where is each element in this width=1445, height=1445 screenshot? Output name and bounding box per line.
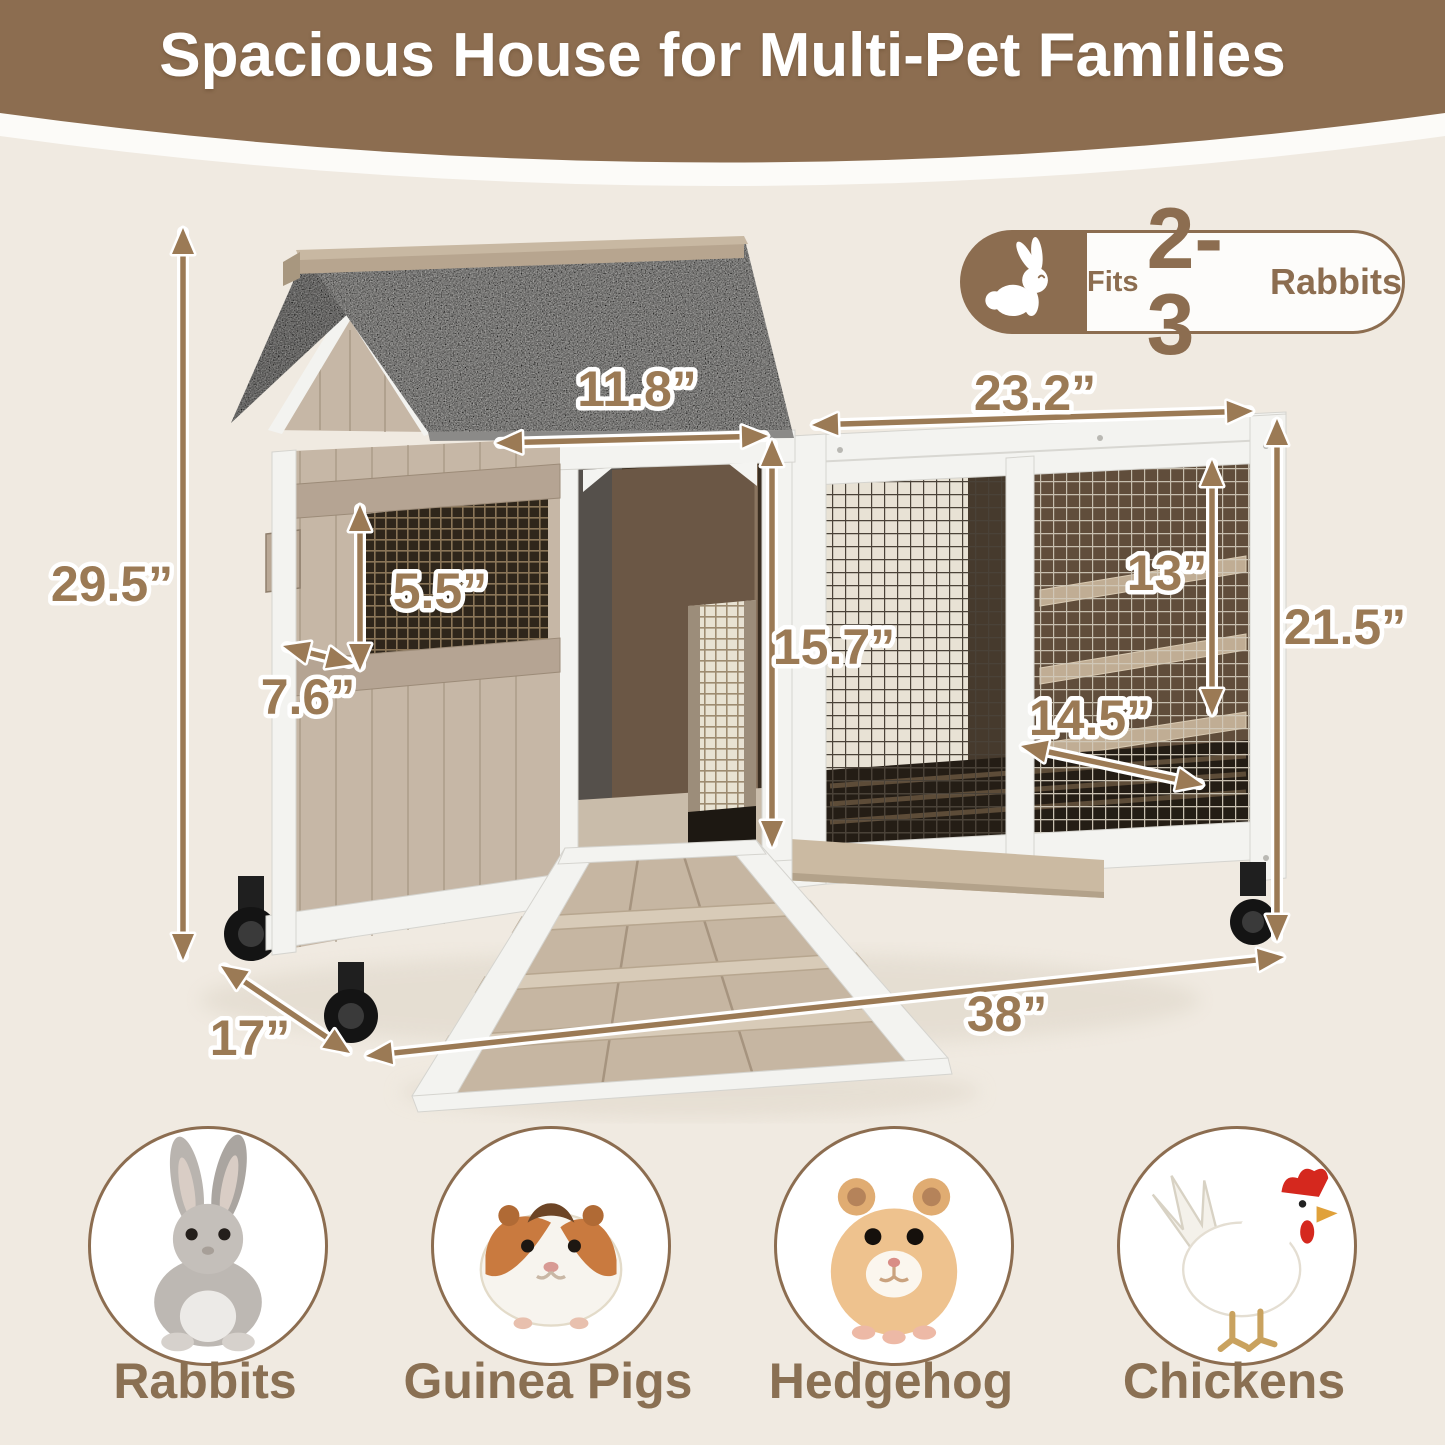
dimension-label-run-width: 23.2”: [974, 365, 1096, 421]
chicken-image: [1120, 1129, 1354, 1363]
dimension-label-run-height: 21.5”: [1284, 599, 1406, 655]
dimension-overall-height: 29.5”: [51, 228, 194, 960]
dimension-label-overall-width: 38”: [967, 986, 1048, 1042]
dimension-run-height: 21.5”: [1266, 419, 1406, 941]
dimension-label-overall-height: 29.5”: [51, 556, 173, 612]
dimension-label-shelf-height: 13”: [1127, 545, 1208, 601]
rabbit-image: [91, 1129, 325, 1363]
dimension-label-window-width: 7.6”: [261, 669, 356, 725]
guinea-pig-image: [434, 1129, 668, 1363]
animal-photo-rabbit: [88, 1126, 328, 1366]
infographic: Spacious House for Multi-Pet Families Fi…: [0, 0, 1445, 1445]
hedgehog-image: [777, 1129, 1011, 1363]
dimension-label-hutch-depth: 17”: [210, 1010, 291, 1066]
run-post-middle: [1006, 456, 1034, 868]
animal-photo-hedgehog: [774, 1126, 1014, 1366]
animal-photo-chicken: [1117, 1126, 1357, 1366]
animal-label-rabbits: Rabbits: [55, 1352, 355, 1410]
animal-photo-guinea-pig: [431, 1126, 671, 1366]
animal-label-chickens: Chickens: [1084, 1352, 1384, 1410]
animal-label-hedgehog: Hedgehog: [741, 1352, 1041, 1410]
dimension-label-run-depth: 14.5”: [1029, 690, 1151, 746]
dimension-label-door-height: 15.7”: [773, 619, 895, 675]
dimension-label-door-width: 11.8”: [577, 361, 697, 417]
dimension-label-window-height: 5.5”: [393, 563, 488, 619]
animal-label-guinea-pigs: Guinea Pigs: [398, 1352, 698, 1410]
